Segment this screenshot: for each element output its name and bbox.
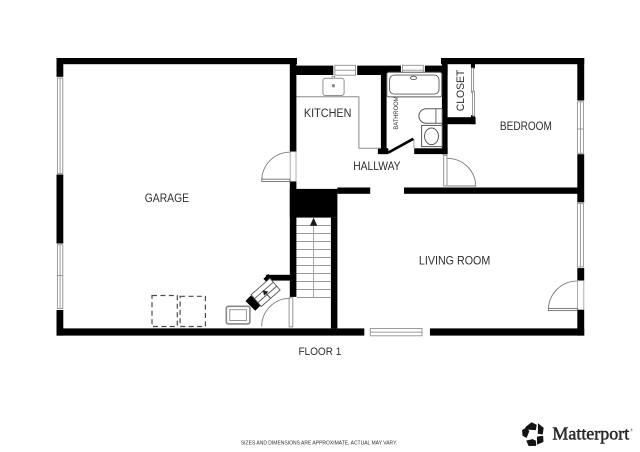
svg-text:SIZES AND DIMENSIONS ARE APPRO: SIZES AND DIMENSIONS ARE APPROXIMATE, AC… [241,440,397,446]
svg-text:BEDROOM: BEDROOM [500,119,552,133]
svg-text:HALLWAY: HALLWAY [353,159,400,173]
svg-text:FLOOR 1: FLOOR 1 [298,346,341,358]
svg-text:KITCHEN: KITCHEN [304,106,352,120]
svg-text:Matterport: Matterport [552,423,629,443]
svg-text:CLOSET: CLOSET [455,69,467,111]
svg-text:®: ® [630,428,633,433]
svg-text:GARAGE: GARAGE [145,191,189,205]
svg-text:BATHROOM: BATHROOM [393,97,400,130]
svg-text:LIVING ROOM: LIVING ROOM [419,254,490,268]
